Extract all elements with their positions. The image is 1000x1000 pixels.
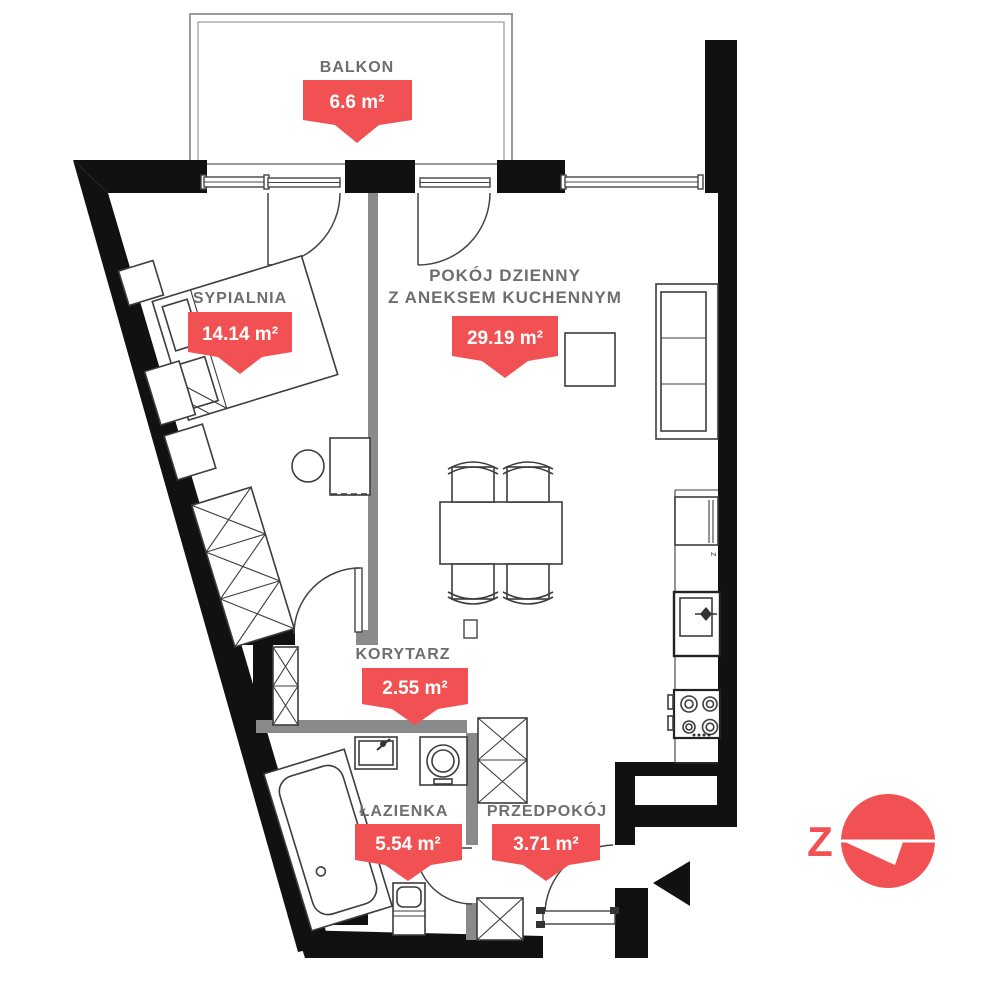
area-value-sypialnia: 14.14 m² (202, 324, 278, 345)
windows (201, 175, 703, 189)
balcony-door-living (418, 193, 490, 265)
partition-bedroom-living (368, 193, 378, 640)
room-label-pokoj-line2: Z ANEKSEM KUCHENNYM (388, 288, 622, 307)
wall-right-main (718, 193, 737, 765)
wall-right-upper (705, 40, 737, 193)
coffee-table (565, 333, 615, 386)
wall-corridor-stub (253, 645, 273, 727)
area-value-pokoj: 29.19 m² (467, 328, 543, 349)
dining-chair (503, 462, 553, 502)
room-label-lazienka: ŁAZIENKA (360, 803, 449, 820)
bedroom-door (294, 568, 362, 634)
sofa (656, 284, 718, 439)
dining-chair (448, 462, 498, 502)
area-value-lazienka: 5.54 m² (375, 834, 440, 855)
kitchen-sink (674, 592, 720, 656)
floor-plan-drawing: z (0, 0, 1000, 1000)
floor-plan: z (0, 0, 1000, 1000)
wall-entry-shaft-left (615, 762, 635, 845)
desk-chair (292, 450, 324, 482)
appliance-label: z (709, 552, 719, 557)
compass-direction-label: Z (807, 818, 833, 865)
dining-chair (448, 564, 498, 604)
room-label-pokoj-line1: POKÓJ DZIENNY (429, 266, 581, 285)
dining-table (440, 502, 562, 564)
stove (668, 690, 720, 738)
hallway-wardrobe-upper (478, 718, 527, 803)
wall-entry-end (615, 888, 648, 958)
wall-top-middle (345, 160, 415, 193)
dining-chair (503, 564, 553, 604)
balcony-door-bedroom (268, 193, 340, 265)
hallway-wardrobe-lower (477, 898, 523, 940)
compass: Z (807, 794, 936, 888)
room-label-korytarz: KORYTARZ (355, 646, 450, 663)
fridge (675, 497, 718, 545)
wall-entry-shaft-bottom (623, 805, 737, 827)
kitchen: z (668, 490, 720, 763)
desk (330, 438, 370, 495)
room-label-sypialnia: SYPIALNIA (193, 290, 287, 307)
wall-top-right-segment (497, 160, 565, 193)
washing-machine (420, 737, 467, 785)
wall-end-post (464, 620, 477, 638)
bathroom-sink (355, 737, 397, 769)
entrance-arrow-icon (653, 861, 690, 906)
area-value-korytarz: 2.55 m² (382, 678, 447, 699)
room-label-balkon: BALKON (320, 59, 394, 76)
corridor-closet (273, 647, 298, 725)
room-label-przedpokoj: PRZEDPOKÓJ (487, 801, 607, 820)
area-value-balkon: 6.6 m² (330, 92, 385, 113)
area-value-przedpokoj: 3.71 m² (513, 834, 578, 855)
toilet (393, 883, 425, 935)
